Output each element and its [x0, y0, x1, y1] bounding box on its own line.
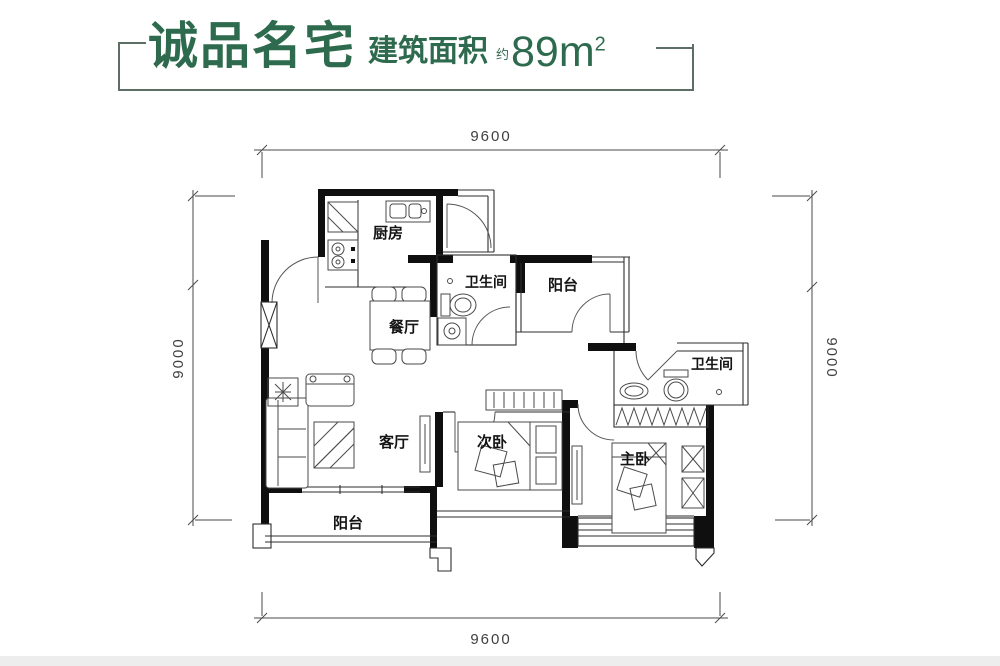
bathroom2-fixtures [620, 370, 722, 401]
dimension-right: 9000 [772, 190, 840, 526]
screenshot-root: 诚品名宅 建筑面积 约 89m2 9600 9600 [0, 0, 1000, 666]
living-furniture [266, 374, 430, 488]
dimension-left: 9000 [170, 190, 235, 526]
stove-icon [328, 240, 358, 270]
wardrobe-side-icon [572, 446, 582, 504]
dim-right-label: 9000 [823, 337, 840, 378]
washbasin-icon [620, 383, 648, 399]
rug-icon [314, 422, 354, 468]
bedroom2-furniture [458, 390, 562, 490]
room-label-bedroom-master: 主卧 [620, 450, 650, 468]
toilet-icon [441, 294, 476, 316]
dim-top-label: 9600 [470, 128, 511, 145]
photo-edge-strip [0, 656, 1000, 666]
sink-icon [386, 201, 430, 222]
room-label-bathroom-right: 卫生间 [691, 356, 733, 372]
chair-icon [402, 287, 426, 302]
room-label-balcony-top: 阳台 [548, 276, 578, 294]
chair-icon [402, 349, 426, 364]
room-label-bedroom-second: 次卧 [477, 433, 507, 451]
chair-icon [372, 287, 396, 302]
dimension-bottom: 9600 [254, 592, 728, 648]
room-label-balcony-bottom: 阳台 [333, 514, 363, 532]
room-label-bathroom-top: 卫生间 [465, 274, 507, 290]
sofa-icon [266, 398, 308, 488]
floor-plan-svg: 9600 9600 9000 9000 [0, 0, 1000, 666]
bed-icon [458, 422, 562, 490]
toilet-icon [664, 370, 688, 401]
tv-cabinet-icon [420, 416, 430, 472]
armchair-icon [306, 374, 354, 406]
chair-icon [372, 349, 396, 364]
room-label-living: 客厅 [378, 433, 409, 451]
nightstand-icon [682, 446, 704, 508]
washing-machine-icon [438, 318, 466, 345]
room-label-dining: 餐厅 [389, 318, 419, 336]
dim-left-label: 9000 [170, 337, 187, 378]
doors-layer [272, 204, 677, 452]
dim-bottom-label: 9600 [470, 631, 511, 648]
shelf-icon [486, 390, 562, 410]
room-label-kitchen: 厨房 [373, 224, 403, 242]
dimension-top: 9600 [254, 128, 728, 178]
